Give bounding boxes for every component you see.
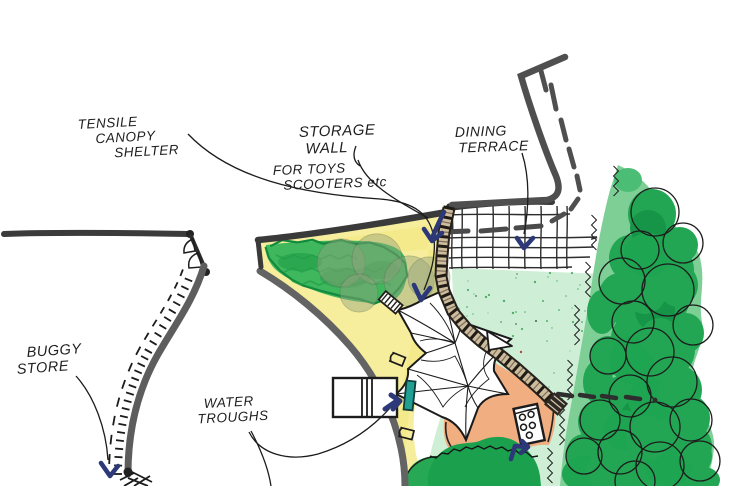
svg-text:STORAGE: STORAGE bbox=[299, 121, 377, 141]
svg-text:BUGGY: BUGGY bbox=[26, 341, 83, 361]
svg-text:TERRACE: TERRACE bbox=[458, 137, 529, 155]
svg-text:WALL: WALL bbox=[305, 139, 348, 157]
svg-text:SHELTER: SHELTER bbox=[114, 142, 179, 160]
svg-text:SCOOTERS etc: SCOOTERS etc bbox=[283, 174, 387, 193]
svg-text:STORE: STORE bbox=[16, 358, 69, 378]
svg-text:TROUGHS: TROUGHS bbox=[197, 408, 269, 427]
